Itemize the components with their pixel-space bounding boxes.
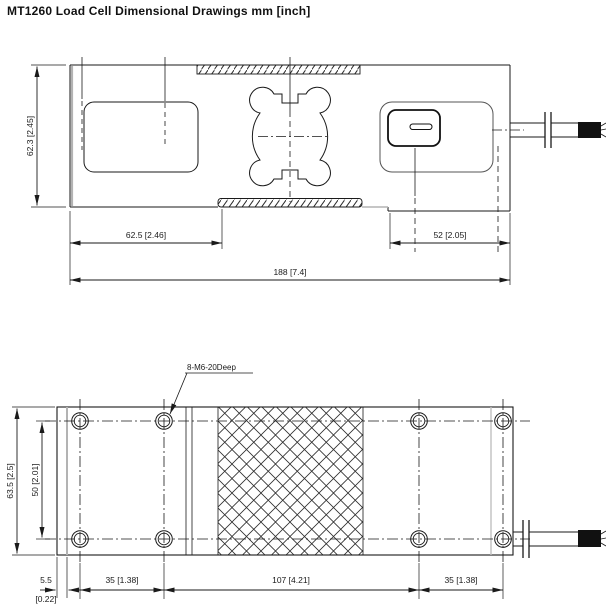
right-pocket [380, 102, 493, 172]
dim-right-section-label: 52 [2.05] [433, 230, 466, 240]
cable-sheath-plan [578, 530, 601, 547]
left-hole-centerlines [82, 57, 165, 150]
dim-overall-width-label: 63.5 [2.5] [5, 463, 15, 498]
dim-hole-pitch-left-label: 35 [1.38] [105, 575, 138, 585]
dim-overall-length-label: 188 [7.4] [273, 267, 306, 277]
side-view [31, 57, 606, 285]
dim-center-span-label: 107 [4.21] [272, 575, 310, 585]
cable-sheath [578, 122, 601, 138]
dim-edge-offset-mm-label: 5.5 [40, 575, 52, 585]
thread-callout-label: 8-M6-20Deep [187, 363, 236, 372]
bottom-seal-band [218, 199, 362, 208]
dim-edge-offset-inch-label: [0.22] [35, 594, 56, 604]
top-seal-band [197, 65, 360, 74]
cable-side-view [492, 112, 606, 148]
dim-left-section-label: 62.5 [2.46] [126, 230, 166, 240]
dim-hole-pitch-right-label: 35 [1.38] [444, 575, 477, 585]
plan-view [12, 373, 606, 599]
sensor-slot [410, 124, 432, 130]
dim-height-label: 62.3 [2.45] [25, 116, 35, 156]
left-pocket [84, 102, 198, 172]
dim-hole-span-width-label: 50 [2.01] [30, 463, 40, 496]
diaphragm-hatch [218, 407, 363, 555]
drawing-page: MT1260 Load Cell Dimensional Drawings mm… [0, 0, 606, 614]
dimensional-drawing-canvas: 62.3 [2.45] 62.5 [2.46] 52 [2.05] 188 [7… [0, 0, 606, 614]
